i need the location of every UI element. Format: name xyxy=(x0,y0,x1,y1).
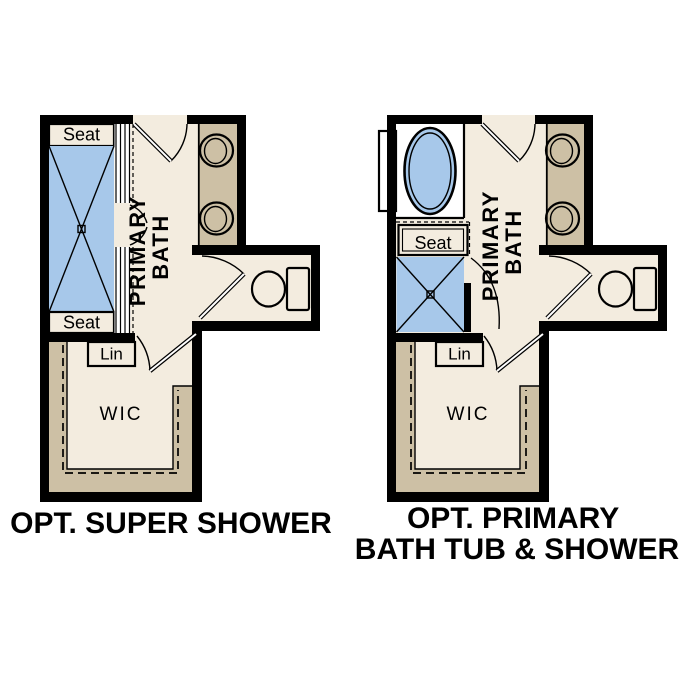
floor-plan-bath-tub-shower: Seat Lin WIC PRIMARY BATH OPT. PRIMARY B… xyxy=(355,115,680,566)
seat-bottom-label: Seat xyxy=(63,313,100,333)
floor-plan-image: Seat Seat Lin WIC PRIMARY BATH OPT. SUPE… xyxy=(0,0,687,687)
seat-label: Seat xyxy=(414,233,451,253)
bath-tub xyxy=(396,124,464,218)
wic-label: WIC xyxy=(100,404,143,425)
door-opening-floor xyxy=(482,115,535,124)
caption-super-shower: OPT. SUPER SHOWER xyxy=(10,507,332,540)
caption-bath-tub-shower: OPT. PRIMARY BATH TUB & SHOWER xyxy=(355,502,680,566)
linen-label: Lin xyxy=(100,345,123,364)
floor-plans-svg: Seat Seat Lin WIC PRIMARY BATH OPT. SUPE… xyxy=(0,0,687,687)
wic-label: WIC xyxy=(447,404,490,425)
floor-plan-super-shower: Seat Seat Lin WIC PRIMARY BATH OPT. SUPE… xyxy=(10,115,332,540)
vanity-counter xyxy=(546,124,584,245)
linen-label: Lin xyxy=(448,345,471,364)
door-opening-floor xyxy=(133,115,187,124)
seat-top-label: Seat xyxy=(63,125,100,145)
